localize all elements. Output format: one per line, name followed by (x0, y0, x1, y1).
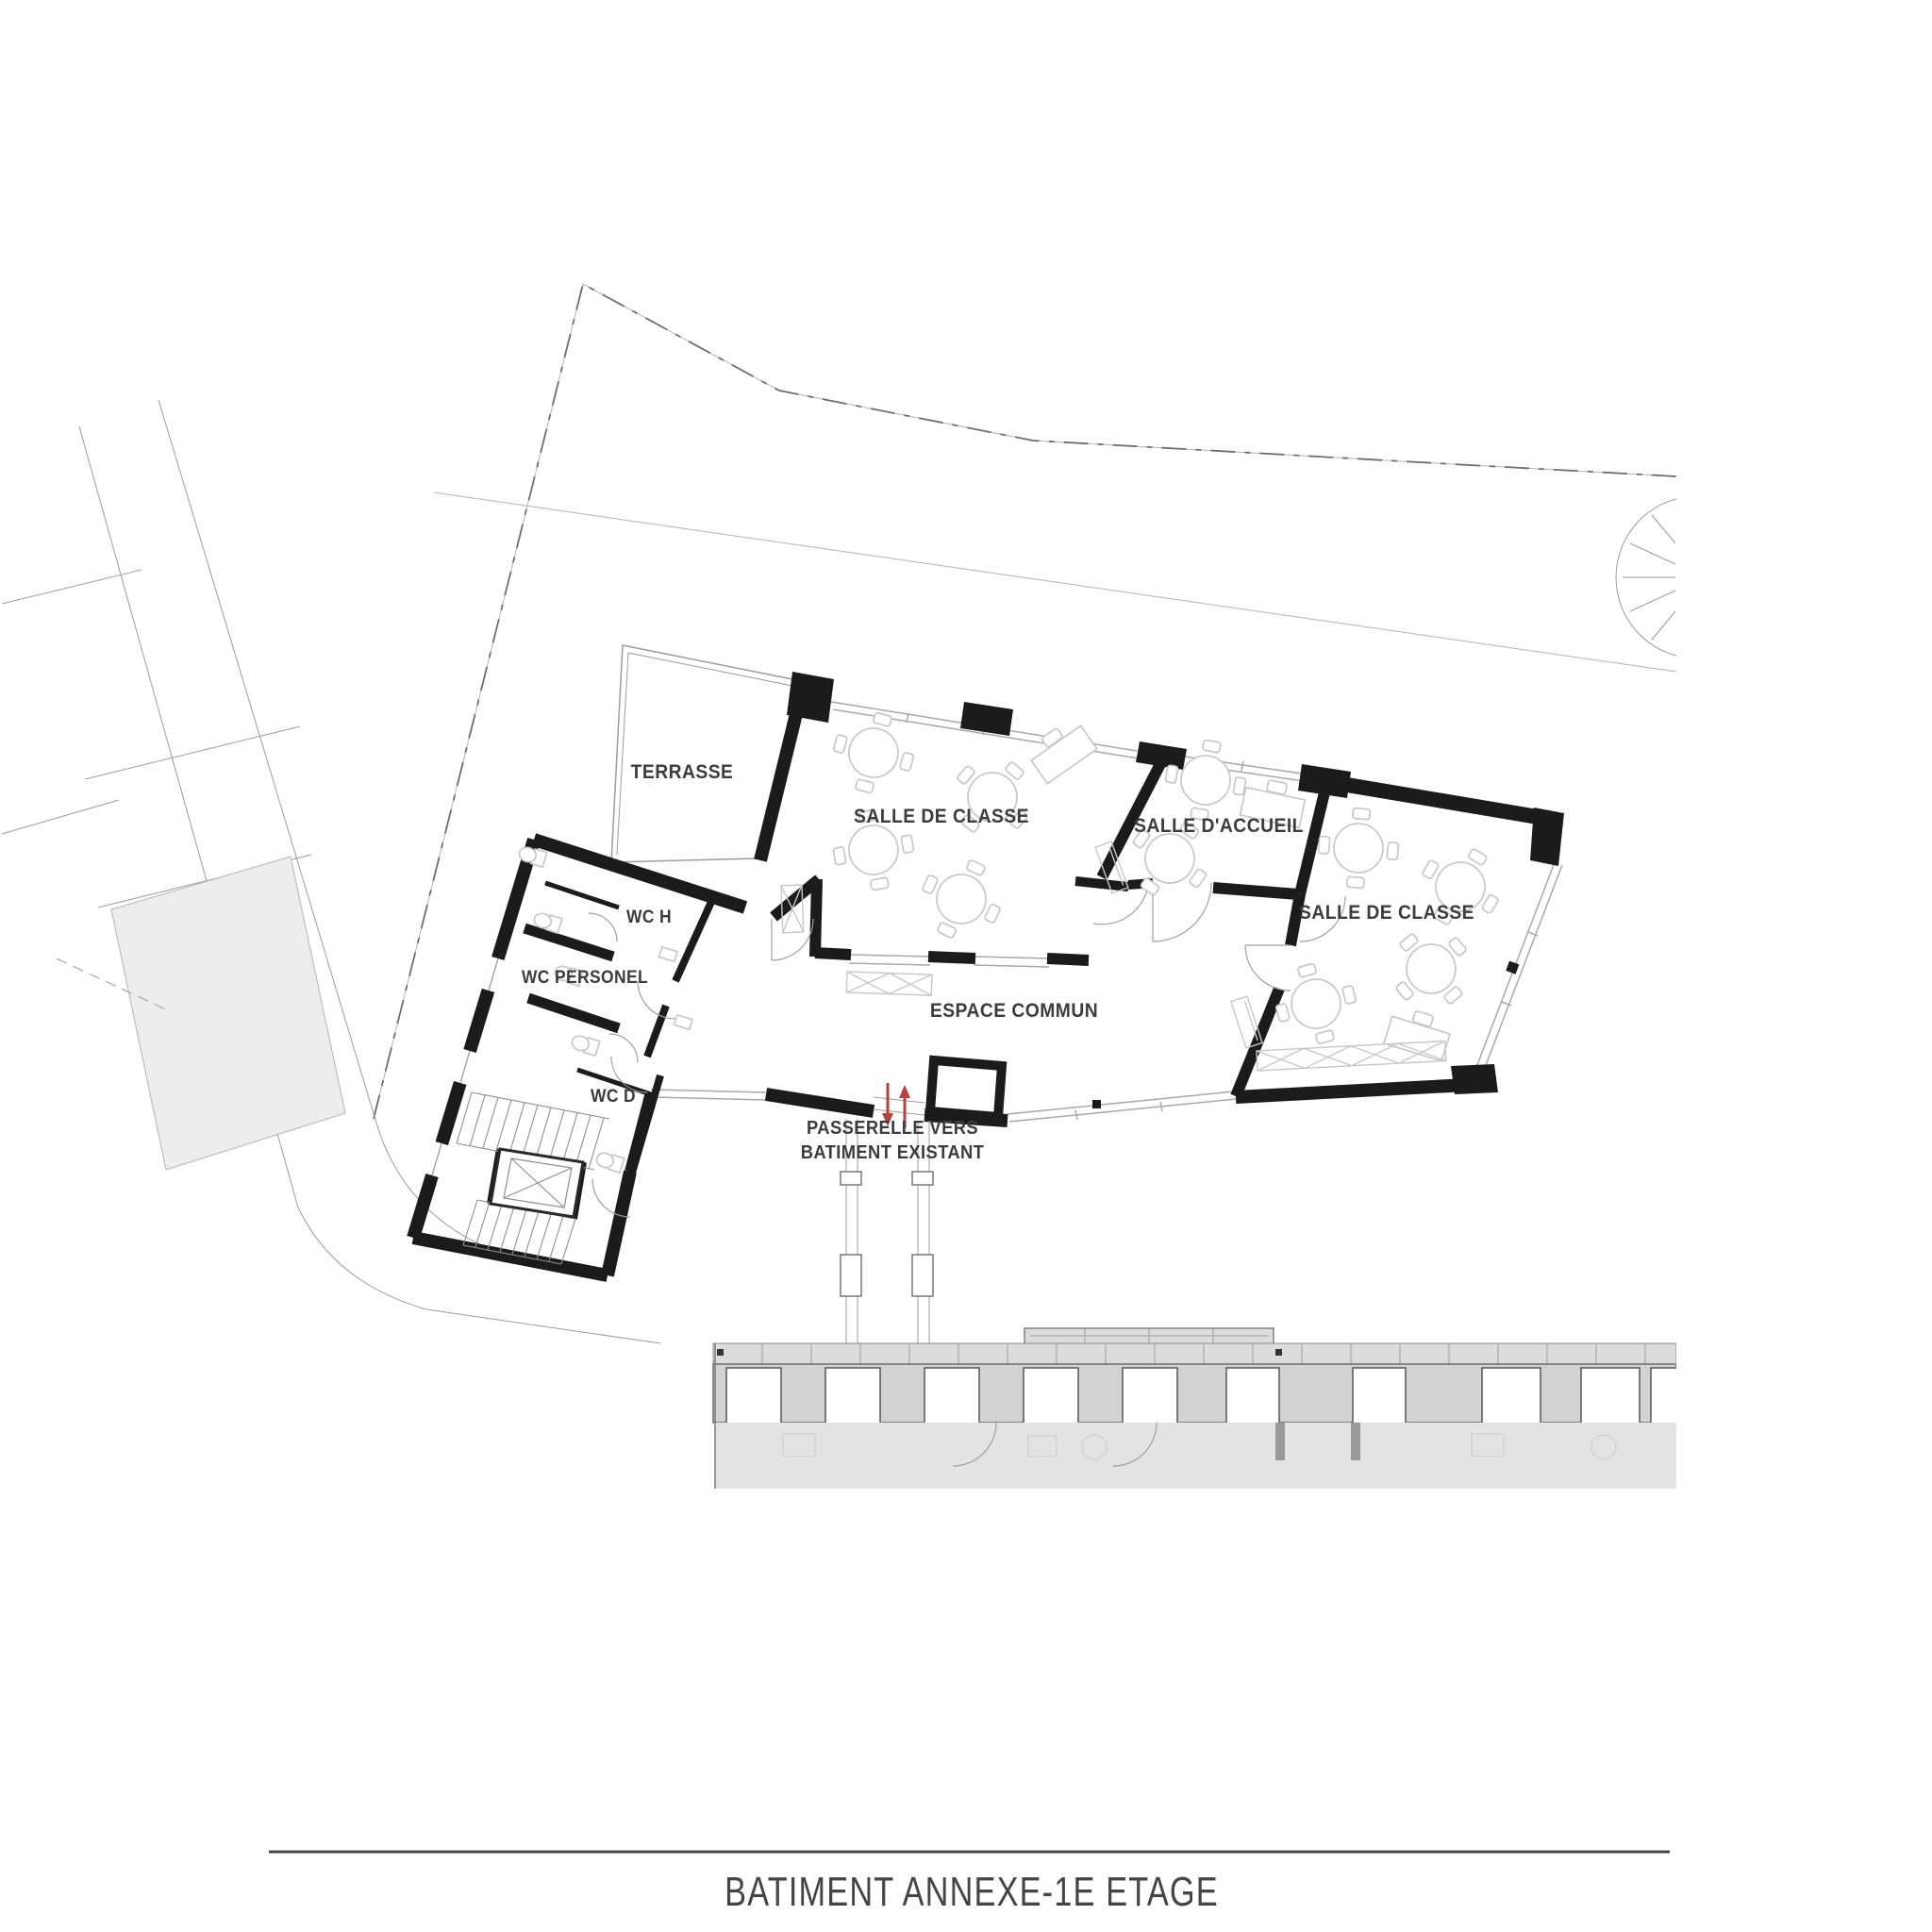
parcel-line-4 (2, 800, 119, 834)
ledge (713, 1343, 1676, 1364)
window-marker (1506, 961, 1519, 974)
bench (1231, 996, 1262, 1048)
round-table (908, 846, 1014, 952)
vestibule (930, 1060, 1002, 1117)
room-label-terrasse: TERRASSE (631, 761, 734, 783)
interior-partition (1275, 1423, 1285, 1460)
existing-interior (715, 1423, 1676, 1489)
survey-dot (1275, 1349, 1282, 1356)
rail-post (841, 1255, 861, 1296)
rail-post (912, 1255, 933, 1296)
room-label-wc-personel: WC PERSONEL (522, 966, 648, 987)
parcel-line-1 (85, 726, 300, 779)
page-title: BATIMENT ANNEXE-1E ETAGE (724, 1869, 1219, 1915)
round-table (1407, 833, 1515, 941)
room-label-salle-accueil: SALLE D'ACCUEIL (1134, 815, 1304, 837)
passerelle-note-line1: PASSERELLE VERS (807, 1118, 978, 1139)
room-label-salle-de-classe-2: SALLE DE CLASSE (1299, 902, 1474, 924)
round-table (937, 741, 1048, 853)
survey-dot (717, 1349, 724, 1356)
plot-line (434, 492, 1676, 672)
teacher-desk (1384, 1005, 1454, 1061)
site-boundary-line (374, 284, 1676, 1119)
room-labels: TERRASSE SALLE DE CLASSE SALLE D'ACCUEIL… (522, 761, 1474, 1106)
annex-building: TERRASSE SALLE DE CLASSE SALLE D'ACCUEIL… (413, 645, 1564, 1275)
cabinet (846, 972, 932, 995)
window-marker (1092, 1100, 1101, 1108)
teacher-desk (1024, 716, 1097, 784)
interior-partition (1351, 1423, 1360, 1460)
room-label-wc-d: WC D (591, 1085, 636, 1106)
round-table (1268, 956, 1365, 1053)
title-block: BATIMENT ANNEXE-1E ETAGE (269, 1852, 1670, 1915)
parcel-line-3 (2, 570, 142, 604)
tree-symbol (1616, 496, 1697, 658)
round-table (1375, 913, 1487, 1024)
passerelle-note-line2: BATIMENT EXISTANT (801, 1142, 985, 1163)
existing-building (713, 1328, 1689, 1489)
rail-post (841, 1172, 861, 1185)
rail-post (912, 1172, 933, 1185)
stair-core (457, 1092, 609, 1264)
floor-plan-canvas: TERRASSE SALLE DE CLASSE SALLE D'ACCUEIL… (0, 0, 1932, 1932)
passerelle: PASSERELLE VERS BATIMENT EXISTANT (801, 1083, 985, 1343)
room-label-espace-commun: ESPACE COMMUN (930, 1000, 1098, 1022)
site-boundary-dashed (374, 284, 1676, 1119)
passerelle-note: PASSERELLE VERS BATIMENT EXISTANT (801, 1118, 985, 1163)
round-table (1315, 805, 1401, 891)
room-label-salle-de-classe-1: SALLE DE CLASSE (854, 806, 1029, 827)
room-label-wc-h: WC H (626, 906, 672, 926)
elevator (491, 1149, 583, 1217)
